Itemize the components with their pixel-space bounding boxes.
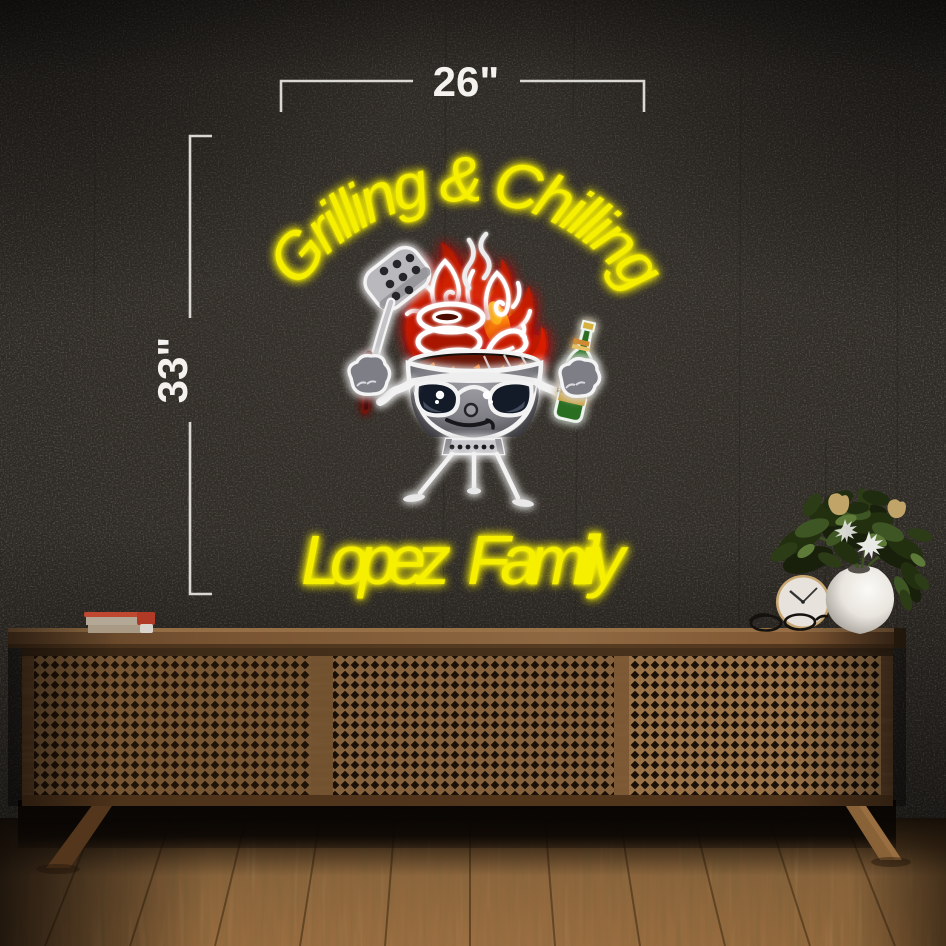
- svg-text:33": 33": [149, 337, 196, 404]
- svg-text:26": 26": [433, 58, 500, 105]
- svg-text:Family: Family: [467, 521, 629, 599]
- svg-text:Lopez: Lopez: [301, 521, 451, 599]
